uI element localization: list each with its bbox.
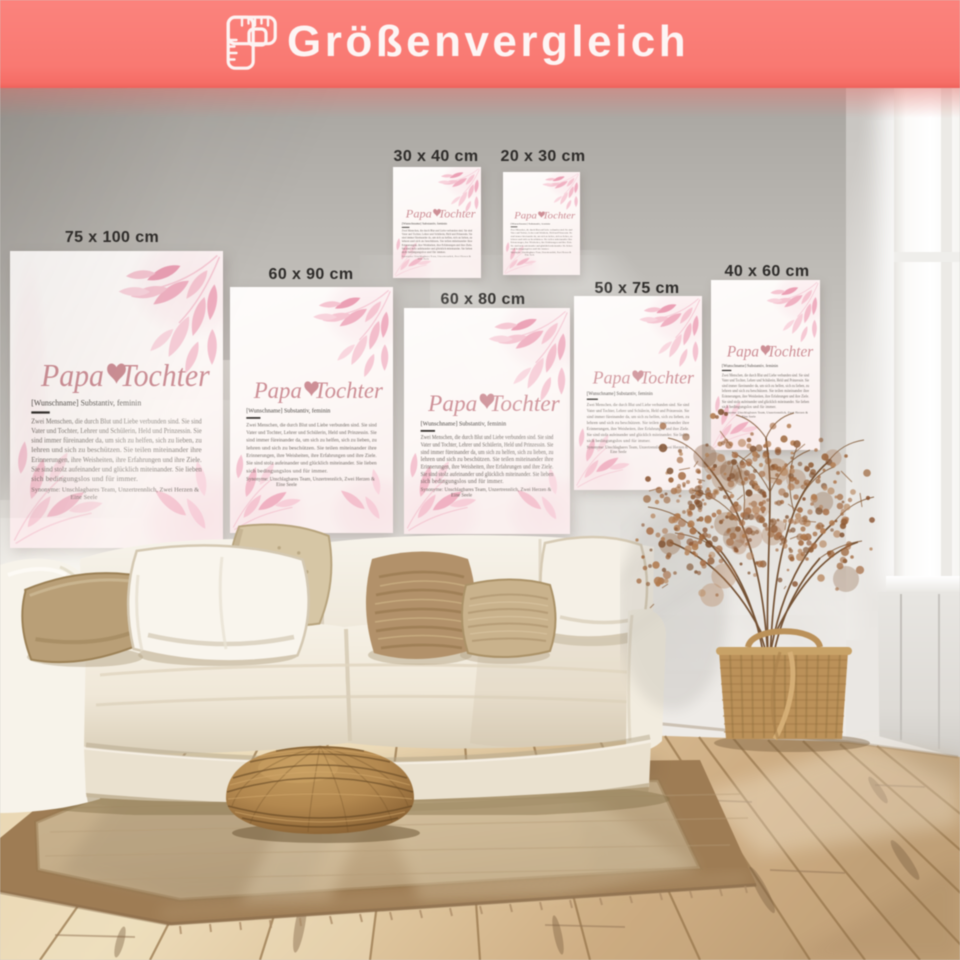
svg-text:Sie sind stolz aufeinander und: Sie sind stolz aufeinander und glücklich… [31,464,202,473]
svg-text:lehren und sich zu beschützen.: lehren und sich zu beschützen. Sie teile… [511,238,574,241]
svg-text:Tochter: Tochter [314,378,383,403]
svg-text:[Wunschname] Substantiv, femin: [Wunschname] Substantiv, feminin [246,408,330,415]
svg-text:sind immer füreinander da, um: sind immer füreinander da, um sich zu he… [511,235,573,238]
svg-text:Zwei Menschen, die durch Blut: Zwei Menschen, die durch Blut und Liebe … [421,435,554,441]
svg-text:Tochter: Tochter [490,391,561,417]
svg-text:[Wunschname] Substantiv, femin: [Wunschname] Substantiv, feminin [587,392,654,397]
svg-text:Papa: Papa [405,207,432,221]
svg-text:Papa: Papa [592,367,631,387]
svg-text:Papa: Papa [726,343,759,360]
svg-text:sind immer füreinander da, um: sind immer füreinander da, um sich zu he… [31,435,202,444]
svg-text:Tochter: Tochter [640,367,695,387]
svg-text:Vater und Tochter, Lehrer und: Vater und Tochter, Lehrer und Schülerin,… [246,430,377,436]
svg-text:Tochter: Tochter [438,207,476,221]
svg-text:Eine Seele: Eine Seele [525,254,535,256]
svg-text:Eine Seele: Eine Seele [418,258,430,261]
svg-text:Synonyme: Unschlagbares Team,: Synonyme: Unschlagbares Team, Unzertrenn… [402,255,471,258]
svg-text:Erinnerungen, ihre Weisheiten,: Erinnerungen, ihre Weisheiten, ihre Erfa… [246,452,377,459]
svg-text:Sie sind stolz aufeinander und: Sie sind stolz aufeinander und glücklich… [402,247,473,251]
svg-text:Tochter: Tochter [767,343,814,360]
svg-text:Synonyme: Unschlagbares Team,: Synonyme: Unschlagbares Team, Unzertrenn… [421,488,552,493]
svg-text:sich bedingungslos und für imm: sich bedingungslos und für immer. [421,478,505,485]
svg-text:Papa: Papa [40,359,104,394]
svg-text:lehren und sich zu beschützen.: lehren und sich zu beschützen. Sie teile… [402,239,473,243]
svg-text:Zwei Menschen, die durch Blut: Zwei Menschen, die durch Blut und Liebe … [31,416,202,425]
svg-text:Papa: Papa [427,391,477,417]
svg-text:Tochter: Tochter [120,359,210,394]
svg-text:Eine Seele: Eine Seele [451,494,473,499]
svg-text:lehren und sich zu beschützen.: lehren und sich zu beschützen. Sie teile… [31,445,202,454]
svg-text:Vater und Tochter, Lehrer und: Vater und Tochter, Lehrer und Schülerin,… [421,442,554,448]
svg-text:Vater und Tochter, Lehrer und: Vater und Tochter, Lehrer und Schülerin,… [511,232,573,235]
svg-text:Vater und Tochter, Lehrer und: Vater und Tochter, Lehrer und Schülerin,… [31,426,202,435]
svg-text:[Wunschname] Substantiv, femin: [Wunschname] Substantiv, feminin [511,223,551,226]
svg-text:Erinnerungen, ihre Weisheiten,: Erinnerungen, ihre Weisheiten, ihre Erfa… [421,463,554,470]
svg-text:sich bedingungslos und für imm: sich bedingungslos und für immer. [246,467,328,474]
svg-text:Zwei Menschen, die durch Blut: Zwei Menschen, die durch Blut und Liebe … [511,228,573,231]
svg-text:Synonyme: Unschlagbares Team,: Synonyme: Unschlagbares Team, Unzertrenn… [246,478,375,483]
svg-text:sich bedingungslos und für imm: sich bedingungslos und für immer. [511,248,550,251]
svg-text:Papa: Papa [253,378,302,403]
svg-text:sich bedingungslos und für imm: sich bedingungslos und für immer. [31,474,138,483]
svg-text:Sie sind stolz aufeinander und: Sie sind stolz aufeinander und glücklich… [511,245,573,248]
svg-text:Sie sind stolz aufeinander und: Sie sind stolz aufeinander und glücklich… [421,471,554,478]
svg-text:Erinnerungen, ihre Weisheiten,: Erinnerungen, ihre Weisheiten, ihre Erfa… [31,455,202,464]
svg-text:Eine Seele: Eine Seele [276,483,297,488]
svg-text:sind immer füreinander da, um: sind immer füreinander da, um sich zu he… [246,437,377,444]
svg-text:Sie sind stolz aufeinander und: Sie sind stolz aufeinander und glücklich… [246,460,377,467]
svg-text:Erinnerungen, ihre Weisheiten,: Erinnerungen, ihre Weisheiten, ihre Erfa… [511,241,573,244]
svg-text:Eine Seele: Eine Seele [70,494,97,501]
svg-text:lehren und sich zu beschützen.: lehren und sich zu beschützen. Sie teile… [421,457,554,463]
svg-text:[Wunschname] Substantiv, femin: [Wunschname] Substantiv, feminin [31,398,141,407]
svg-text:sich bedingungslos und für imm: sich bedingungslos und für immer. [402,250,446,254]
svg-text:Synonyme: Unschlagbares Team,: Synonyme: Unschlagbares Team, Unzertrenn… [31,486,199,493]
svg-text:Papa: Papa [513,211,537,221]
svg-text:Zwei Menschen, die durch Blut: Zwei Menschen, die durch Blut und Liebe … [246,422,377,428]
svg-text:lehren und sich zu beschützen.: lehren und sich zu beschützen. Sie teile… [722,389,810,393]
svg-text:sind immer füreinander da, um: sind immer füreinander da, um sich zu he… [421,449,554,456]
svg-text:lehren und sich zu beschützen.: lehren und sich zu beschützen. Sie teile… [246,445,377,451]
svg-text:[Wunschname] Substantiv, femin: [Wunschname] Substantiv, feminin [421,420,507,427]
svg-text:Tochter: Tochter [543,211,576,221]
